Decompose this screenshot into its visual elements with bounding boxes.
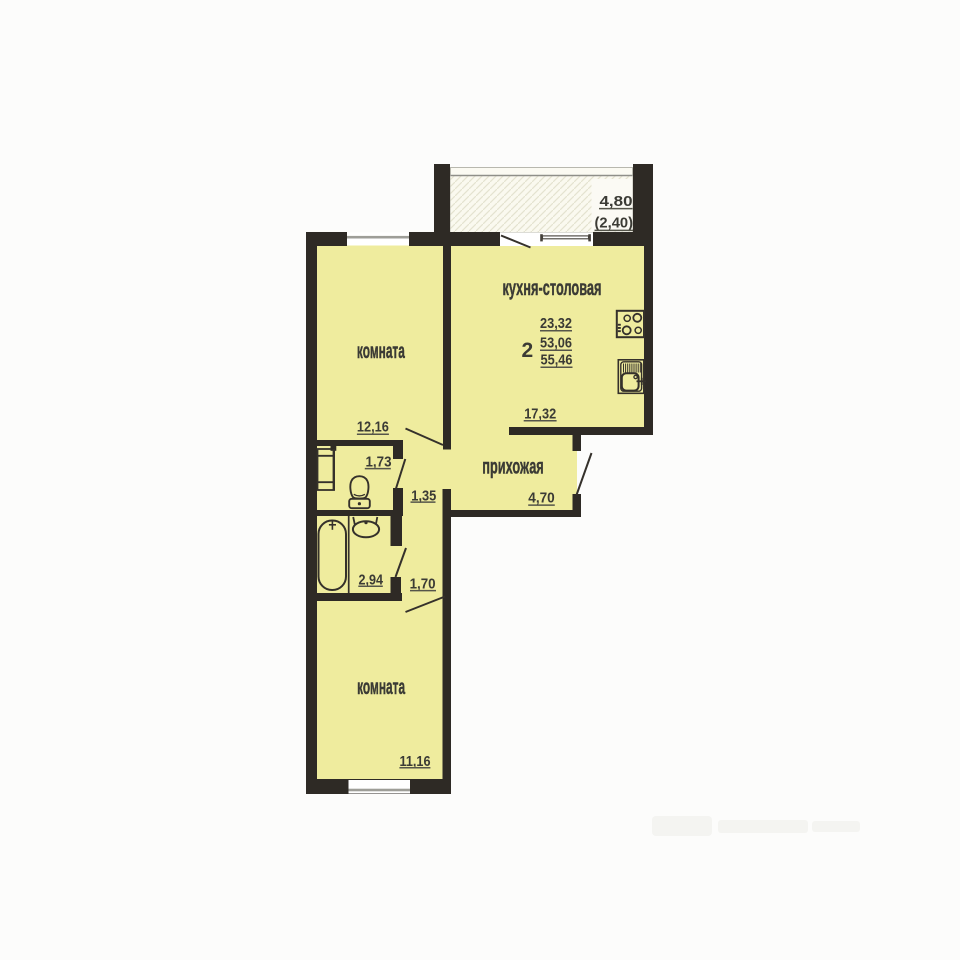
- svg-text:4,70: 4,70: [528, 489, 555, 506]
- svg-text:53,06: 53,06: [540, 335, 572, 352]
- svg-text:кухня-столовая: кухня-столовая: [503, 276, 602, 300]
- svg-text:(2,40): (2,40): [595, 215, 634, 232]
- svg-text:комната: комната: [357, 339, 406, 363]
- svg-text:17,32: 17,32: [524, 406, 556, 423]
- svg-text:12,16: 12,16: [357, 419, 389, 436]
- svg-text:55,46: 55,46: [541, 352, 573, 369]
- svg-text:комната: комната: [357, 675, 406, 699]
- svg-text:прихожая: прихожая: [482, 455, 544, 479]
- svg-text:4,80: 4,80: [600, 193, 633, 210]
- svg-text:2: 2: [522, 339, 534, 362]
- svg-text:23,32: 23,32: [540, 315, 572, 332]
